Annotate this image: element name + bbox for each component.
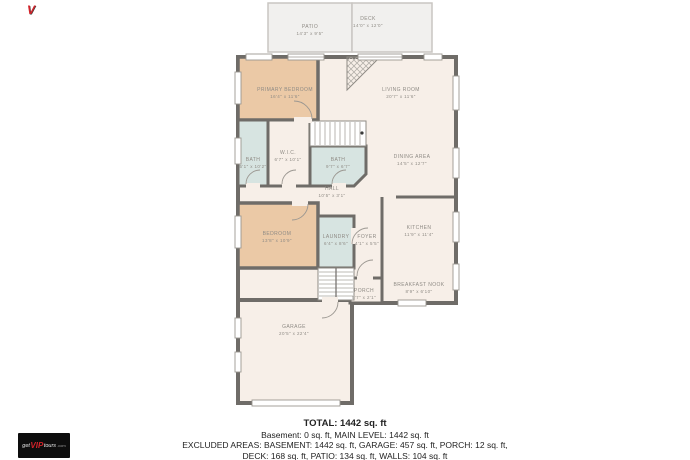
room-label-bedroom: BEDROOM 13'8" x 10'9" — [262, 231, 292, 243]
room-label-wic: W.I.C. 6'7" x 10'1" — [275, 150, 302, 162]
room-label-laundry: LAUNDRY 6'4" x 8'6" — [323, 234, 350, 246]
room-label-dining-area: DINING AREA 14'5" x 12'7" — [394, 154, 431, 166]
room-label-bath-left: BATH 5'1" x 10'2" — [240, 157, 267, 169]
summary-line-excluded-1: EXCLUDED AREAS: BASEMENT: 1442 sq. ft, G… — [0, 440, 690, 451]
area-summary: TOTAL: 1442 sq. ft Basement: 0 sq. ft, M… — [0, 419, 690, 460]
floorplan-page: V — [0, 0, 690, 460]
total-area-text: TOTAL: 1442 sq. ft — [0, 419, 690, 430]
summary-line-excluded-2: DECK: 168 sq. ft, PATIO: 134 sq. ft, WAL… — [0, 451, 690, 460]
room-label-porch: PORCH 5'7" x 2'1" — [352, 288, 376, 300]
room-label-garage: GARAGE 20'5" x 22'4" — [279, 324, 309, 336]
stairs-upper — [310, 121, 366, 146]
bath-left-area — [238, 120, 268, 186]
room-label-kitchen: KITCHEN 11'9" x 11'4" — [404, 225, 433, 237]
room-label-deck: DECK 14'0" x 12'0" — [353, 16, 383, 28]
room-label-breakfast-nook: BREAKFAST NOOK 8'9" x 6'10" — [393, 282, 444, 294]
getviptours-logo: get VIP tours .com — [18, 433, 70, 458]
room-label-living-room: LIVING ROOM 20'7" x 11'6" — [382, 87, 420, 99]
room-label-foyer: FOYER 4'1" x 5'5" — [355, 234, 379, 246]
room-label-primary-bedroom: PRIMARY BEDROOM 16'4" x 11'6" — [257, 87, 313, 99]
room-label-bath-main: BATH 9'7" x 6'7" — [326, 157, 350, 169]
summary-line-levels: Basement: 0 sq. ft, MAIN LEVEL: 1442 sq.… — [0, 430, 690, 441]
floorplan-drawing — [0, 0, 690, 460]
room-label-hall: HALL 10'5" x 3'1" — [319, 186, 346, 198]
room-label-patio: PATIO 14'3" x 9'5" — [297, 24, 324, 36]
